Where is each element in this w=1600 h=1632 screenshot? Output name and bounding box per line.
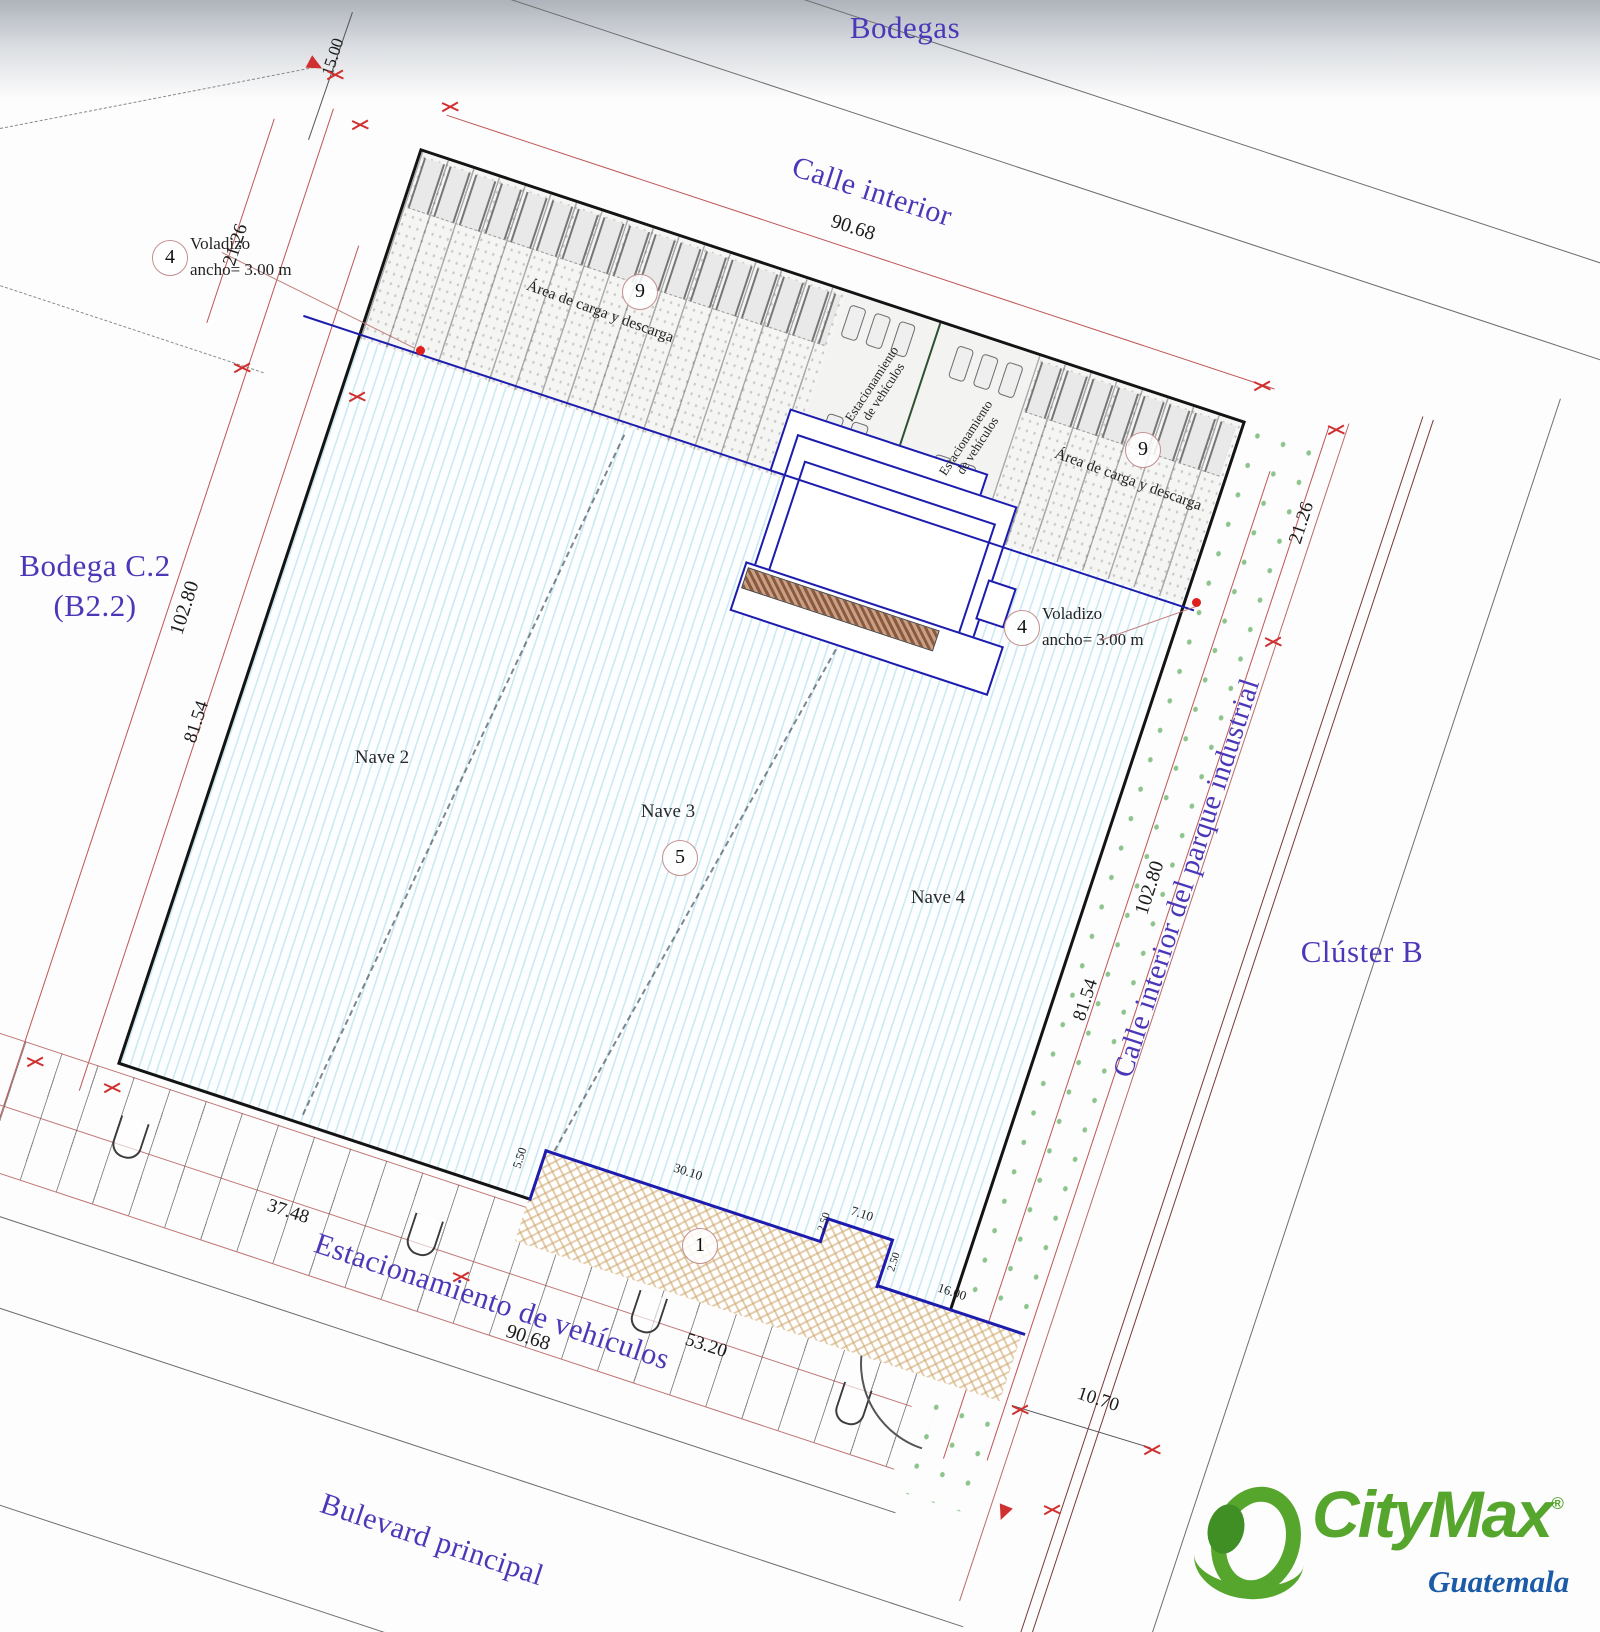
nave-separator-dashed: [302, 434, 625, 1115]
callout-circle-4-left: 4: [152, 240, 188, 276]
citymax-logo: CityMax® Guatemala: [1160, 1468, 1600, 1632]
street-label-cluster-b: Clúster B: [1301, 934, 1423, 970]
street-label-bodegas: Bodegas: [850, 10, 960, 46]
logo-brand-text: CityMax®: [1312, 1476, 1564, 1552]
red-arrow-icon: [994, 1503, 1013, 1522]
voladizo-endpoint-dot: [416, 346, 425, 355]
voladizo-right-detail: ancho= 3.00 m: [1042, 630, 1144, 650]
callout-circle-4-right: 4: [1004, 610, 1040, 646]
street-line: [0, 1333, 639, 1632]
dim-left-inner: 81.54: [180, 698, 214, 745]
site-plan-page: Bodegas Calle interior Bodega C.2 (B2.2)…: [0, 0, 1600, 1632]
logo-brand: CityMax: [1312, 1477, 1551, 1551]
nave4-label: Nave 4: [911, 887, 965, 909]
marker-circle-9-left: 9: [622, 274, 658, 310]
marker-circle-1: 1: [682, 1228, 718, 1264]
top-road-band: [0, 0, 1600, 100]
logo-region-text: Guatemala: [1428, 1564, 1569, 1600]
voladizo-right-title: Voladizo: [1042, 604, 1102, 624]
marker-circle-5: 5: [662, 840, 698, 876]
voladizo-endpoint-dot: [1192, 598, 1201, 607]
street-label-bodega-c2: Bodega C.2: [19, 548, 170, 584]
marker-circle-9-right: 9: [1125, 432, 1161, 468]
dim-left-total: 102.80: [166, 578, 205, 637]
street-label-bulevard: Bulevard principal: [316, 1487, 548, 1593]
nave3-label: Nave 3: [641, 801, 695, 823]
dim-line-left-short: [206, 119, 274, 323]
nave2-label: Nave 2: [355, 747, 409, 769]
dim-top-width: 90.68: [828, 210, 878, 246]
logo-registered-mark: ®: [1551, 1494, 1564, 1513]
street-label-bodega-c2-sub: (B2.2): [53, 588, 136, 624]
dim-line-corner: [1012, 1405, 1151, 1448]
